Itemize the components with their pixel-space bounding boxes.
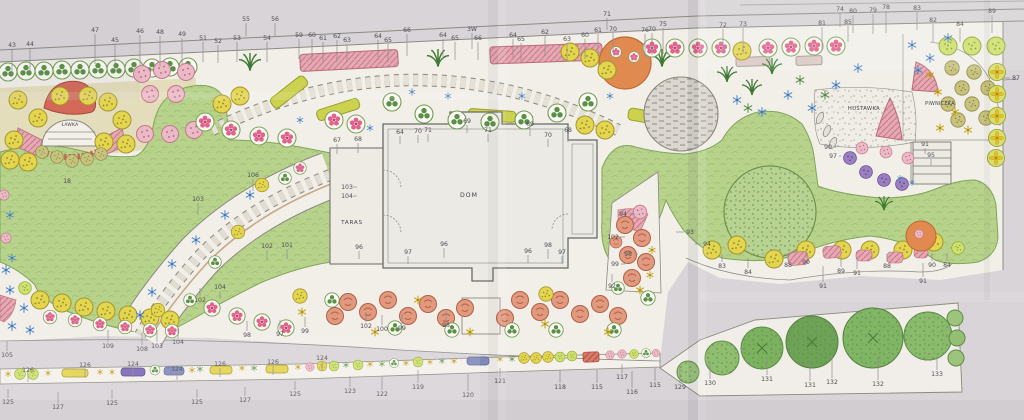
plant-number: 120 xyxy=(462,392,474,399)
plant-number: 49 xyxy=(178,31,186,38)
plant-number: 67 xyxy=(333,137,341,144)
plant-number: 62 xyxy=(541,29,549,36)
gravel-circle xyxy=(644,77,718,151)
plant-number: 109 xyxy=(102,343,114,350)
plant-number: 83 xyxy=(718,263,726,270)
plant-number: 91 xyxy=(853,270,861,277)
plant-number: 74 xyxy=(836,6,844,13)
garden-plan-photo: ŁAWKA DOM TARAS HUŚTAWKA PIWNICZKA 43444… xyxy=(0,0,1024,420)
plant-number: 84 xyxy=(943,262,951,269)
plant-number: 91 xyxy=(819,283,827,290)
plant-number: 94 xyxy=(703,241,711,248)
plant-number: 81 xyxy=(818,20,826,27)
plant-number: 124 xyxy=(127,361,139,368)
plant-number: 56 xyxy=(271,16,279,23)
plant-number: 80 xyxy=(849,8,857,15)
plant-number: 132 xyxy=(872,381,884,388)
swing-label: HUŚTAWKA xyxy=(848,105,880,112)
plant-number: 117 xyxy=(616,374,628,381)
plant-number: 90 xyxy=(928,262,936,269)
plant-number: 64 xyxy=(374,33,382,40)
plant-number: 75 xyxy=(659,21,667,28)
plant-number: 126 xyxy=(214,361,226,368)
plant-number: 60 xyxy=(581,32,589,39)
plant-number: 95 xyxy=(927,152,935,159)
cellar-label: PIWNICZKA xyxy=(925,101,955,107)
plant-number: 126 xyxy=(22,367,34,374)
plant-number: 131 xyxy=(761,376,773,383)
plant-number: 60 xyxy=(308,32,316,39)
plant-number: 131 xyxy=(804,382,816,389)
plant-number: 132 xyxy=(826,379,838,386)
plant-number: 70 xyxy=(414,128,422,135)
plant-number: 126 xyxy=(79,362,91,369)
plant-number: 78 xyxy=(882,4,890,11)
plant-number: 96 xyxy=(440,241,448,248)
plant-number: 64 xyxy=(396,129,404,136)
plant-number: 102 xyxy=(607,234,619,241)
plant-number: 72 xyxy=(719,22,727,29)
plant-number: 45 xyxy=(111,37,119,44)
plant-number: 59 xyxy=(295,32,303,39)
plant-number: 64 xyxy=(509,32,517,39)
plant-number: 115 xyxy=(591,384,603,391)
plant-number: 94 xyxy=(619,211,627,218)
plant-number: 90 xyxy=(824,144,832,151)
plant-number: 115 xyxy=(649,382,661,389)
plant-number: 66 xyxy=(403,27,411,34)
plant-number: 89 xyxy=(988,8,996,15)
plant-number: 90 xyxy=(802,259,810,266)
plant-number: 98 xyxy=(243,332,251,339)
plant-number: 91 xyxy=(919,278,927,285)
plant-number: 66 xyxy=(474,35,482,42)
plant-number: 54 xyxy=(263,35,271,42)
plant-number: 121 xyxy=(494,378,506,385)
plant-number: 101 xyxy=(281,242,293,249)
plant-number: 103 xyxy=(192,196,204,203)
plant-number: 63 xyxy=(343,37,351,44)
plant-number: 96 xyxy=(524,248,532,255)
plant-number: 103 xyxy=(341,184,353,191)
plant-number: 71 xyxy=(424,127,432,134)
plant-number: 97 xyxy=(829,153,837,160)
plant-number: 102 xyxy=(194,297,206,304)
plant-number: 79 xyxy=(869,7,877,14)
plant-number: 18 xyxy=(63,178,71,185)
plant-number: 97 xyxy=(276,331,284,338)
plant-number: 124 xyxy=(171,366,183,373)
plant-number: 105 xyxy=(1,352,13,359)
plant-number: 70 xyxy=(609,26,617,33)
plant-number: 106 xyxy=(247,172,259,179)
plant-number: 46 xyxy=(136,28,144,35)
plant-number: 65 xyxy=(451,35,459,42)
plant-number: 118 xyxy=(554,384,566,391)
plant-number: 97 xyxy=(404,249,412,256)
plant-number: 124 xyxy=(316,355,328,362)
plant-number: 88 xyxy=(883,263,891,270)
plant-number: 83 xyxy=(913,5,921,12)
plant-number: 102 xyxy=(360,323,372,330)
plant-number: 70 xyxy=(544,132,552,139)
plant-number: 84 xyxy=(744,269,752,276)
plant-number: 48 xyxy=(156,29,164,36)
plant-number: 100 xyxy=(376,326,388,333)
plant-number: 65 xyxy=(384,37,392,44)
plant-number: 116 xyxy=(626,389,638,396)
plant-number: 102 xyxy=(261,243,273,250)
plant-number: 108 xyxy=(136,346,148,353)
plant-number: 126 xyxy=(267,359,279,366)
swing-area xyxy=(814,87,916,149)
plant-number: 125 xyxy=(289,391,301,398)
plant-number: 130 xyxy=(704,380,716,387)
plant-number: 68 xyxy=(564,127,572,134)
plant-number: 82 xyxy=(929,17,937,24)
plant-number: 71 xyxy=(603,11,611,18)
plant-number: 73 xyxy=(739,21,747,28)
plant-number: 91 xyxy=(921,141,929,148)
terrace-label: TARAS xyxy=(340,220,363,226)
plant-number: 103 xyxy=(151,343,163,350)
plant-number: 70 xyxy=(648,26,656,33)
plant-number: 51 xyxy=(199,35,207,42)
plant-number: 119 xyxy=(412,384,424,391)
plant-number: 44 xyxy=(26,41,34,48)
plant-number: 98 xyxy=(442,322,450,329)
plant-number: 127 xyxy=(52,404,64,411)
plant-number: 99 xyxy=(398,325,406,332)
plant-number: 129 xyxy=(674,384,686,391)
plant-number: 127 xyxy=(239,397,251,404)
plant-number: 47 xyxy=(91,27,99,34)
plant-number: 97 xyxy=(558,249,566,256)
plant-number: 125 xyxy=(2,399,14,406)
house-label: DOM xyxy=(460,192,478,199)
plant-number: 92 xyxy=(608,283,616,290)
plant-number: 69 xyxy=(463,118,471,125)
plant-number: 3W xyxy=(467,26,477,33)
plant-number: 104 xyxy=(172,339,184,346)
plant-number: 93 xyxy=(686,229,694,236)
plant-number: 98 xyxy=(544,242,552,249)
plant-number: 68 xyxy=(354,136,362,143)
plant-number: 63 xyxy=(563,36,571,43)
plant-number: 71 xyxy=(484,127,492,134)
plant-number: 125 xyxy=(106,400,118,407)
plant-number: 96 xyxy=(355,244,363,251)
garden-plan-svg: ŁAWKA DOM TARAS HUŚTAWKA PIWNICZKA 43444… xyxy=(0,0,1024,420)
plant-number: 55 xyxy=(242,16,250,23)
bench-label: ŁAWKA xyxy=(61,122,79,128)
plant-number: 61 xyxy=(319,35,327,42)
plant-number: 69 xyxy=(526,121,534,128)
plant-number: 122 xyxy=(376,391,388,398)
plant-number: 125 xyxy=(191,399,203,406)
plant-number: 43 xyxy=(8,42,16,49)
plant-number: 53 xyxy=(233,35,241,42)
plant-number: 84 xyxy=(956,21,964,28)
plant-number: 85 xyxy=(844,19,852,26)
plant-number: 89 xyxy=(837,268,845,275)
plant-number: 99 xyxy=(611,261,619,268)
plant-number: 65 xyxy=(517,36,525,43)
plant-number: 64 xyxy=(439,32,447,39)
plant-number: 88 xyxy=(784,262,792,269)
plant-number: 87 xyxy=(1012,75,1020,82)
plant-number: 99 xyxy=(301,328,309,335)
plant-number: 133 xyxy=(931,371,943,378)
plant-number: 98 xyxy=(624,251,632,258)
plant-number: 62 xyxy=(333,33,341,40)
plant-number: 104 xyxy=(341,193,353,200)
plant-number: 104 xyxy=(214,284,226,291)
plant-number: 52 xyxy=(214,38,222,45)
plant-number: 123 xyxy=(344,388,356,395)
plant-number: 61 xyxy=(594,27,602,34)
